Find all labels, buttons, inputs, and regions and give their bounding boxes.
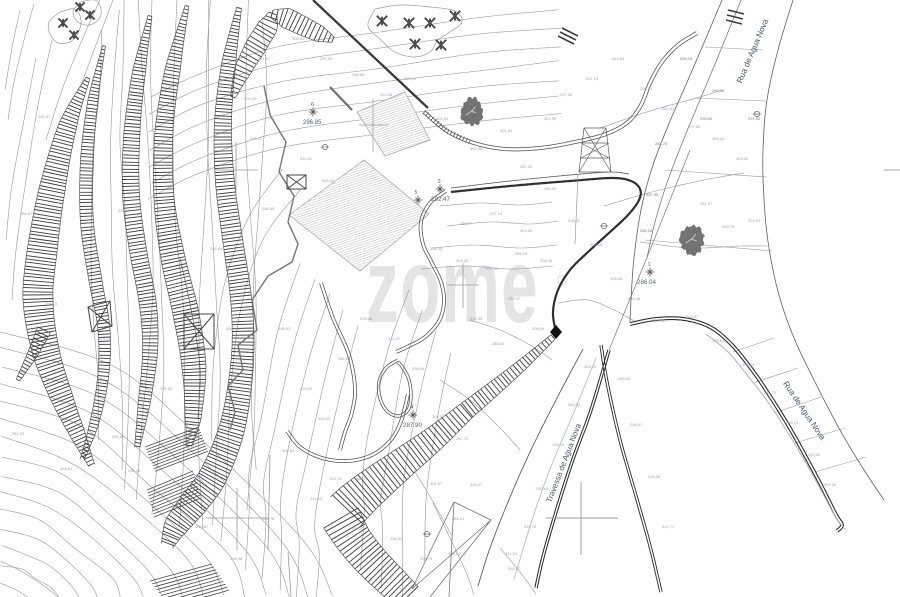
svg-text:310,07: 310,07 bbox=[470, 482, 483, 487]
svg-text:305,03: 305,03 bbox=[322, 178, 335, 183]
svg-text:304,09: 304,09 bbox=[318, 416, 331, 421]
svg-text:295,93: 295,93 bbox=[278, 326, 291, 331]
svg-text:293,64: 293,64 bbox=[536, 486, 549, 491]
svg-text:297,06: 297,06 bbox=[560, 92, 573, 97]
svg-text:298,62: 298,62 bbox=[742, 362, 755, 367]
svg-text:5: 5 bbox=[415, 190, 418, 196]
svg-text:286,88: 286,88 bbox=[338, 356, 351, 361]
svg-text:305,15: 305,15 bbox=[584, 364, 597, 369]
svg-text:293,29: 293,29 bbox=[300, 386, 313, 391]
svg-text:301,97: 301,97 bbox=[430, 481, 443, 486]
svg-text:285,06: 285,06 bbox=[652, 318, 665, 323]
svg-text:298,59: 298,59 bbox=[412, 366, 425, 371]
svg-text:301,00: 301,00 bbox=[436, 116, 449, 121]
svg-text:285,84: 285,84 bbox=[210, 246, 223, 251]
svg-text:310,53: 310,53 bbox=[808, 452, 821, 457]
svg-text:303,08: 303,08 bbox=[590, 242, 603, 247]
svg-text:288,01: 288,01 bbox=[452, 516, 465, 521]
svg-text:296,51: 296,51 bbox=[630, 422, 643, 427]
svg-text:307,96: 307,96 bbox=[544, 116, 557, 121]
svg-text:300,15: 300,15 bbox=[404, 76, 417, 81]
svg-text:300,96: 300,96 bbox=[470, 146, 483, 151]
svg-text:309,59: 309,59 bbox=[432, 414, 445, 419]
svg-text:288,77: 288,77 bbox=[460, 221, 473, 226]
svg-text:299,32: 299,32 bbox=[618, 376, 631, 381]
svg-text:306,57: 306,57 bbox=[686, 314, 699, 319]
svg-text:295,38: 295,38 bbox=[648, 474, 661, 479]
svg-text:288,81: 288,81 bbox=[60, 466, 73, 471]
svg-text:3: 3 bbox=[438, 179, 441, 185]
svg-text:296.85: 296.85 bbox=[303, 120, 322, 126]
svg-text:310,87: 310,87 bbox=[196, 524, 209, 529]
svg-text:298,32: 298,32 bbox=[568, 218, 581, 223]
svg-text:287,70: 287,70 bbox=[456, 436, 469, 441]
svg-text:302,48: 302,48 bbox=[380, 92, 393, 97]
svg-text:309,09: 309,09 bbox=[532, 326, 545, 331]
svg-text:281,87: 281,87 bbox=[38, 114, 51, 119]
svg-text:288,21: 288,21 bbox=[786, 420, 799, 425]
svg-text:292.47: 292.47 bbox=[431, 196, 450, 203]
svg-text:297,14: 297,14 bbox=[490, 211, 503, 216]
svg-text:292,31: 292,31 bbox=[330, 476, 343, 481]
svg-text:294,15: 294,15 bbox=[680, 56, 693, 61]
svg-text:292,08: 292,08 bbox=[712, 88, 725, 93]
svg-text:300,24: 300,24 bbox=[712, 136, 725, 141]
svg-text:290,09: 290,09 bbox=[552, 442, 565, 447]
svg-text:286.04: 286.04 bbox=[637, 279, 656, 286]
svg-text:292,09: 292,09 bbox=[310, 496, 323, 501]
svg-text:281,80: 281,80 bbox=[140, 318, 153, 323]
svg-text:311,37: 311,37 bbox=[388, 336, 401, 341]
svg-text:284,46: 284,46 bbox=[628, 296, 641, 301]
svg-text:308,34: 308,34 bbox=[430, 246, 443, 251]
svg-text:303,13: 303,13 bbox=[98, 336, 111, 341]
svg-text:6: 6 bbox=[311, 102, 314, 108]
svg-text:286,20: 286,20 bbox=[640, 228, 653, 233]
svg-text:294,57: 294,57 bbox=[508, 566, 521, 571]
svg-text:288,82: 288,82 bbox=[712, 338, 725, 343]
svg-text:305,49: 305,49 bbox=[610, 276, 623, 281]
svg-text:288,67: 288,67 bbox=[20, 211, 33, 216]
svg-text:304,57: 304,57 bbox=[118, 208, 131, 213]
svg-text:296,46: 296,46 bbox=[540, 258, 553, 263]
svg-text:309,63: 309,63 bbox=[282, 448, 295, 453]
svg-text:287,25: 287,25 bbox=[520, 164, 533, 169]
svg-text:298,81: 298,81 bbox=[640, 86, 653, 91]
svg-text:281,97: 281,97 bbox=[700, 201, 713, 206]
svg-text:311,34: 311,34 bbox=[505, 551, 518, 556]
svg-text:290,82: 290,82 bbox=[568, 402, 581, 407]
svg-text:297,13: 297,13 bbox=[586, 76, 599, 81]
svg-text:285,18: 285,18 bbox=[515, 251, 528, 256]
svg-text:299,93: 299,93 bbox=[320, 56, 333, 61]
svg-text:293,09: 293,09 bbox=[486, 266, 499, 271]
svg-text:309,08: 309,08 bbox=[190, 474, 203, 479]
svg-text:288,70: 288,70 bbox=[356, 476, 369, 481]
svg-text:295,62: 295,62 bbox=[160, 386, 173, 391]
svg-text:305,70: 305,70 bbox=[722, 224, 735, 229]
svg-text:4: 4 bbox=[411, 405, 414, 411]
svg-text:287.90: 287.90 bbox=[403, 422, 422, 429]
svg-text:283,70: 283,70 bbox=[764, 390, 777, 395]
svg-text:290,00: 290,00 bbox=[244, 96, 257, 101]
svg-text:283,84: 283,84 bbox=[612, 56, 625, 61]
svg-text:298,98: 298,98 bbox=[230, 556, 243, 561]
svg-text:281,05: 281,05 bbox=[12, 431, 25, 436]
svg-text:311,87: 311,87 bbox=[258, 56, 271, 61]
svg-text:297,55: 297,55 bbox=[688, 124, 701, 129]
svg-text:290,00: 290,00 bbox=[700, 116, 713, 121]
svg-text:292,39: 292,39 bbox=[470, 316, 483, 321]
svg-text:303,29: 303,29 bbox=[520, 228, 533, 233]
svg-text:311,62: 311,62 bbox=[300, 156, 313, 161]
svg-text:284,33: 284,33 bbox=[262, 206, 275, 211]
svg-text:304,26: 304,26 bbox=[456, 258, 469, 263]
svg-text:303,54: 303,54 bbox=[736, 156, 749, 161]
svg-text:310,71: 310,71 bbox=[662, 524, 675, 529]
svg-text:280,94: 280,94 bbox=[544, 186, 557, 191]
svg-text:289,53: 289,53 bbox=[352, 72, 365, 77]
svg-text:284,95: 284,95 bbox=[226, 326, 239, 331]
svg-text:287,35: 287,35 bbox=[646, 192, 659, 197]
svg-text:285,60: 285,60 bbox=[492, 341, 505, 346]
svg-text:308,51: 308,51 bbox=[292, 36, 305, 41]
svg-text:310,32: 310,32 bbox=[250, 136, 263, 141]
svg-text:294,10: 294,10 bbox=[45, 301, 58, 306]
svg-text:293,92: 293,92 bbox=[748, 218, 761, 223]
svg-text:289,42: 289,42 bbox=[352, 526, 365, 531]
svg-text:281,37: 281,37 bbox=[508, 296, 521, 301]
svg-text:311,70: 311,70 bbox=[524, 524, 537, 529]
svg-text:288,23: 288,23 bbox=[655, 141, 668, 146]
svg-text:301,50: 301,50 bbox=[500, 128, 513, 133]
svg-text:296,00: 296,00 bbox=[128, 468, 141, 473]
svg-text:293,86: 293,86 bbox=[360, 316, 373, 321]
svg-text:291,60: 291,60 bbox=[748, 116, 761, 121]
svg-text:283,80: 283,80 bbox=[112, 434, 125, 439]
svg-text:289,31: 289,31 bbox=[662, 106, 675, 111]
svg-text:296,83: 296,83 bbox=[390, 536, 403, 541]
svg-text:301,36: 301,36 bbox=[824, 482, 837, 487]
svg-text:1: 1 bbox=[648, 262, 651, 268]
